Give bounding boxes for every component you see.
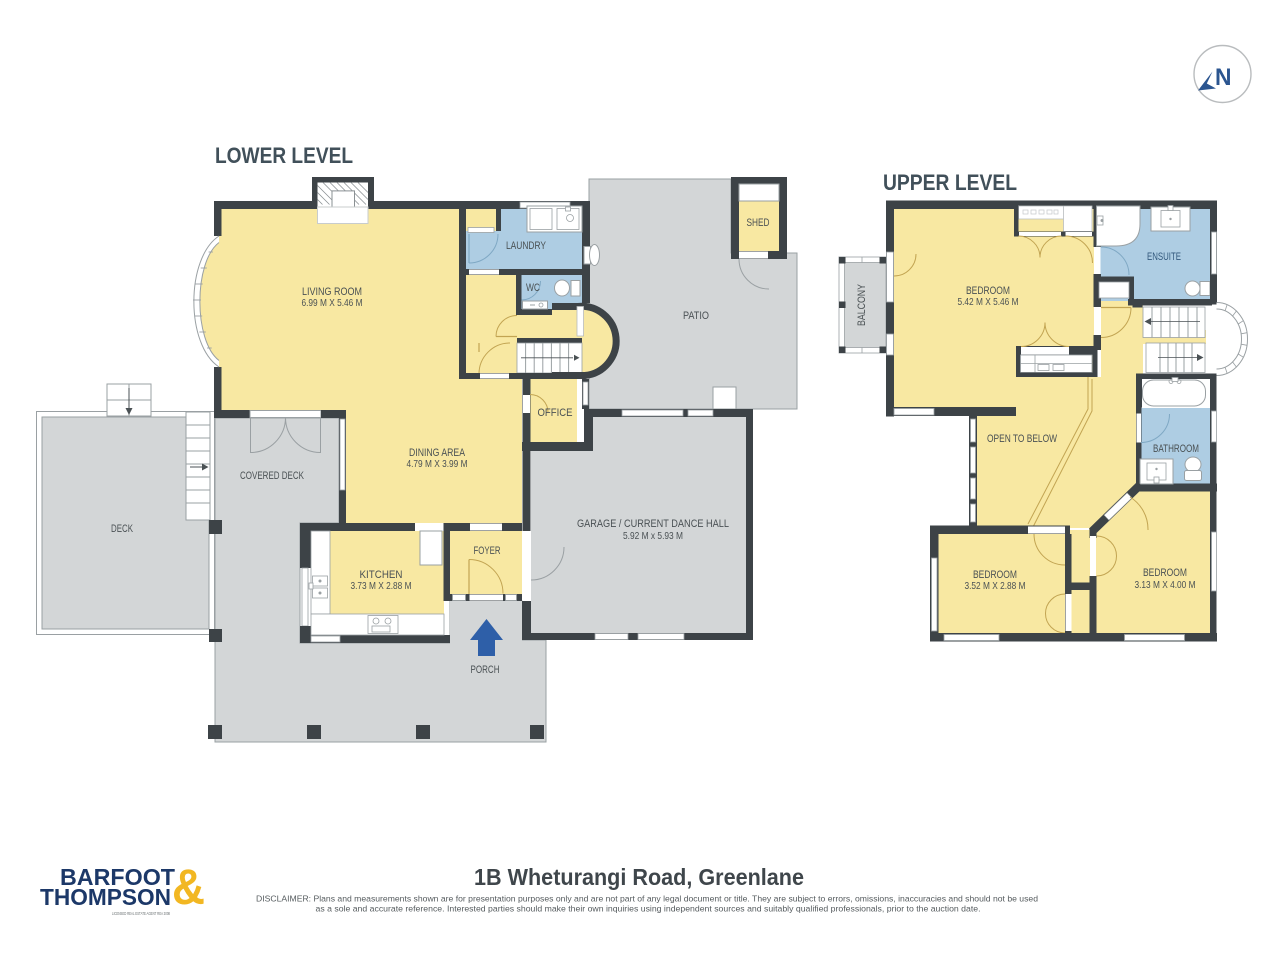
svg-text:DINING AREA: DINING AREA: [409, 447, 466, 459]
svg-text:COVERED DECK: COVERED DECK: [240, 470, 304, 482]
svg-text:DISCLAIMER: Plans and measurem: DISCLAIMER: Plans and measurements shown…: [256, 894, 1038, 904]
svg-text:1B Wheturangi Road, Greenlane: 1B Wheturangi Road, Greenlane: [474, 864, 804, 890]
svg-text:ENSUITE: ENSUITE: [1147, 251, 1181, 263]
svg-text:DECK: DECK: [111, 523, 133, 535]
svg-text:as a sole and accurate referen: as a sole and accurate reference. Intere…: [316, 904, 981, 914]
svg-text:PATIO: PATIO: [683, 310, 709, 322]
svg-text:BEDROOM: BEDROOM: [973, 569, 1017, 581]
svg-text:OFFICE: OFFICE: [538, 407, 573, 419]
svg-text:5.42 M X 5.46 M: 5.42 M X 5.46 M: [958, 297, 1019, 308]
svg-text:LIVING ROOM: LIVING ROOM: [302, 286, 362, 298]
svg-text:3.52 M X 2.88 M: 3.52 M X 2.88 M: [965, 581, 1026, 592]
svg-text:WC: WC: [526, 282, 540, 294]
svg-text:BALCONY: BALCONY: [856, 283, 868, 326]
svg-text:&: &: [172, 859, 205, 915]
svg-text:BEDROOM: BEDROOM: [1143, 567, 1187, 579]
svg-text:BEDROOM: BEDROOM: [966, 285, 1010, 297]
svg-text:LOWER LEVEL: LOWER LEVEL: [215, 143, 353, 168]
svg-text:N: N: [1215, 64, 1232, 91]
svg-text:PORCH: PORCH: [471, 664, 500, 676]
svg-text:LAUNDRY: LAUNDRY: [506, 240, 547, 252]
svg-text:3.73 M X 2.88 M: 3.73 M X 2.88 M: [351, 581, 412, 592]
svg-text:OPEN TO BELOW: OPEN TO BELOW: [987, 433, 1057, 445]
svg-text:SHED: SHED: [747, 217, 770, 229]
svg-text:BATHROOM: BATHROOM: [1153, 443, 1199, 455]
svg-text:5.92 M x 5.93 M: 5.92 M x 5.93 M: [623, 531, 683, 542]
svg-text:FOYER: FOYER: [474, 545, 501, 557]
svg-text:6.99 M X 5.46 M: 6.99 M X 5.46 M: [302, 298, 363, 309]
svg-text:UPPER LEVEL: UPPER LEVEL: [883, 170, 1017, 195]
svg-text:THOMPSON: THOMPSON: [40, 884, 171, 910]
svg-text:KITCHEN: KITCHEN: [360, 569, 403, 581]
svg-text:3.13 M X 4.00 M: 3.13 M X 4.00 M: [1135, 580, 1196, 591]
svg-text:LICENSED REAL ESTATE AGENT REA: LICENSED REAL ESTATE AGENT REA 2008: [112, 911, 170, 916]
svg-text:4.79 M X 3.99 M: 4.79 M X 3.99 M: [407, 459, 468, 470]
svg-text:GARAGE / CURRENT DANCE HALL: GARAGE / CURRENT DANCE HALL: [577, 518, 729, 530]
